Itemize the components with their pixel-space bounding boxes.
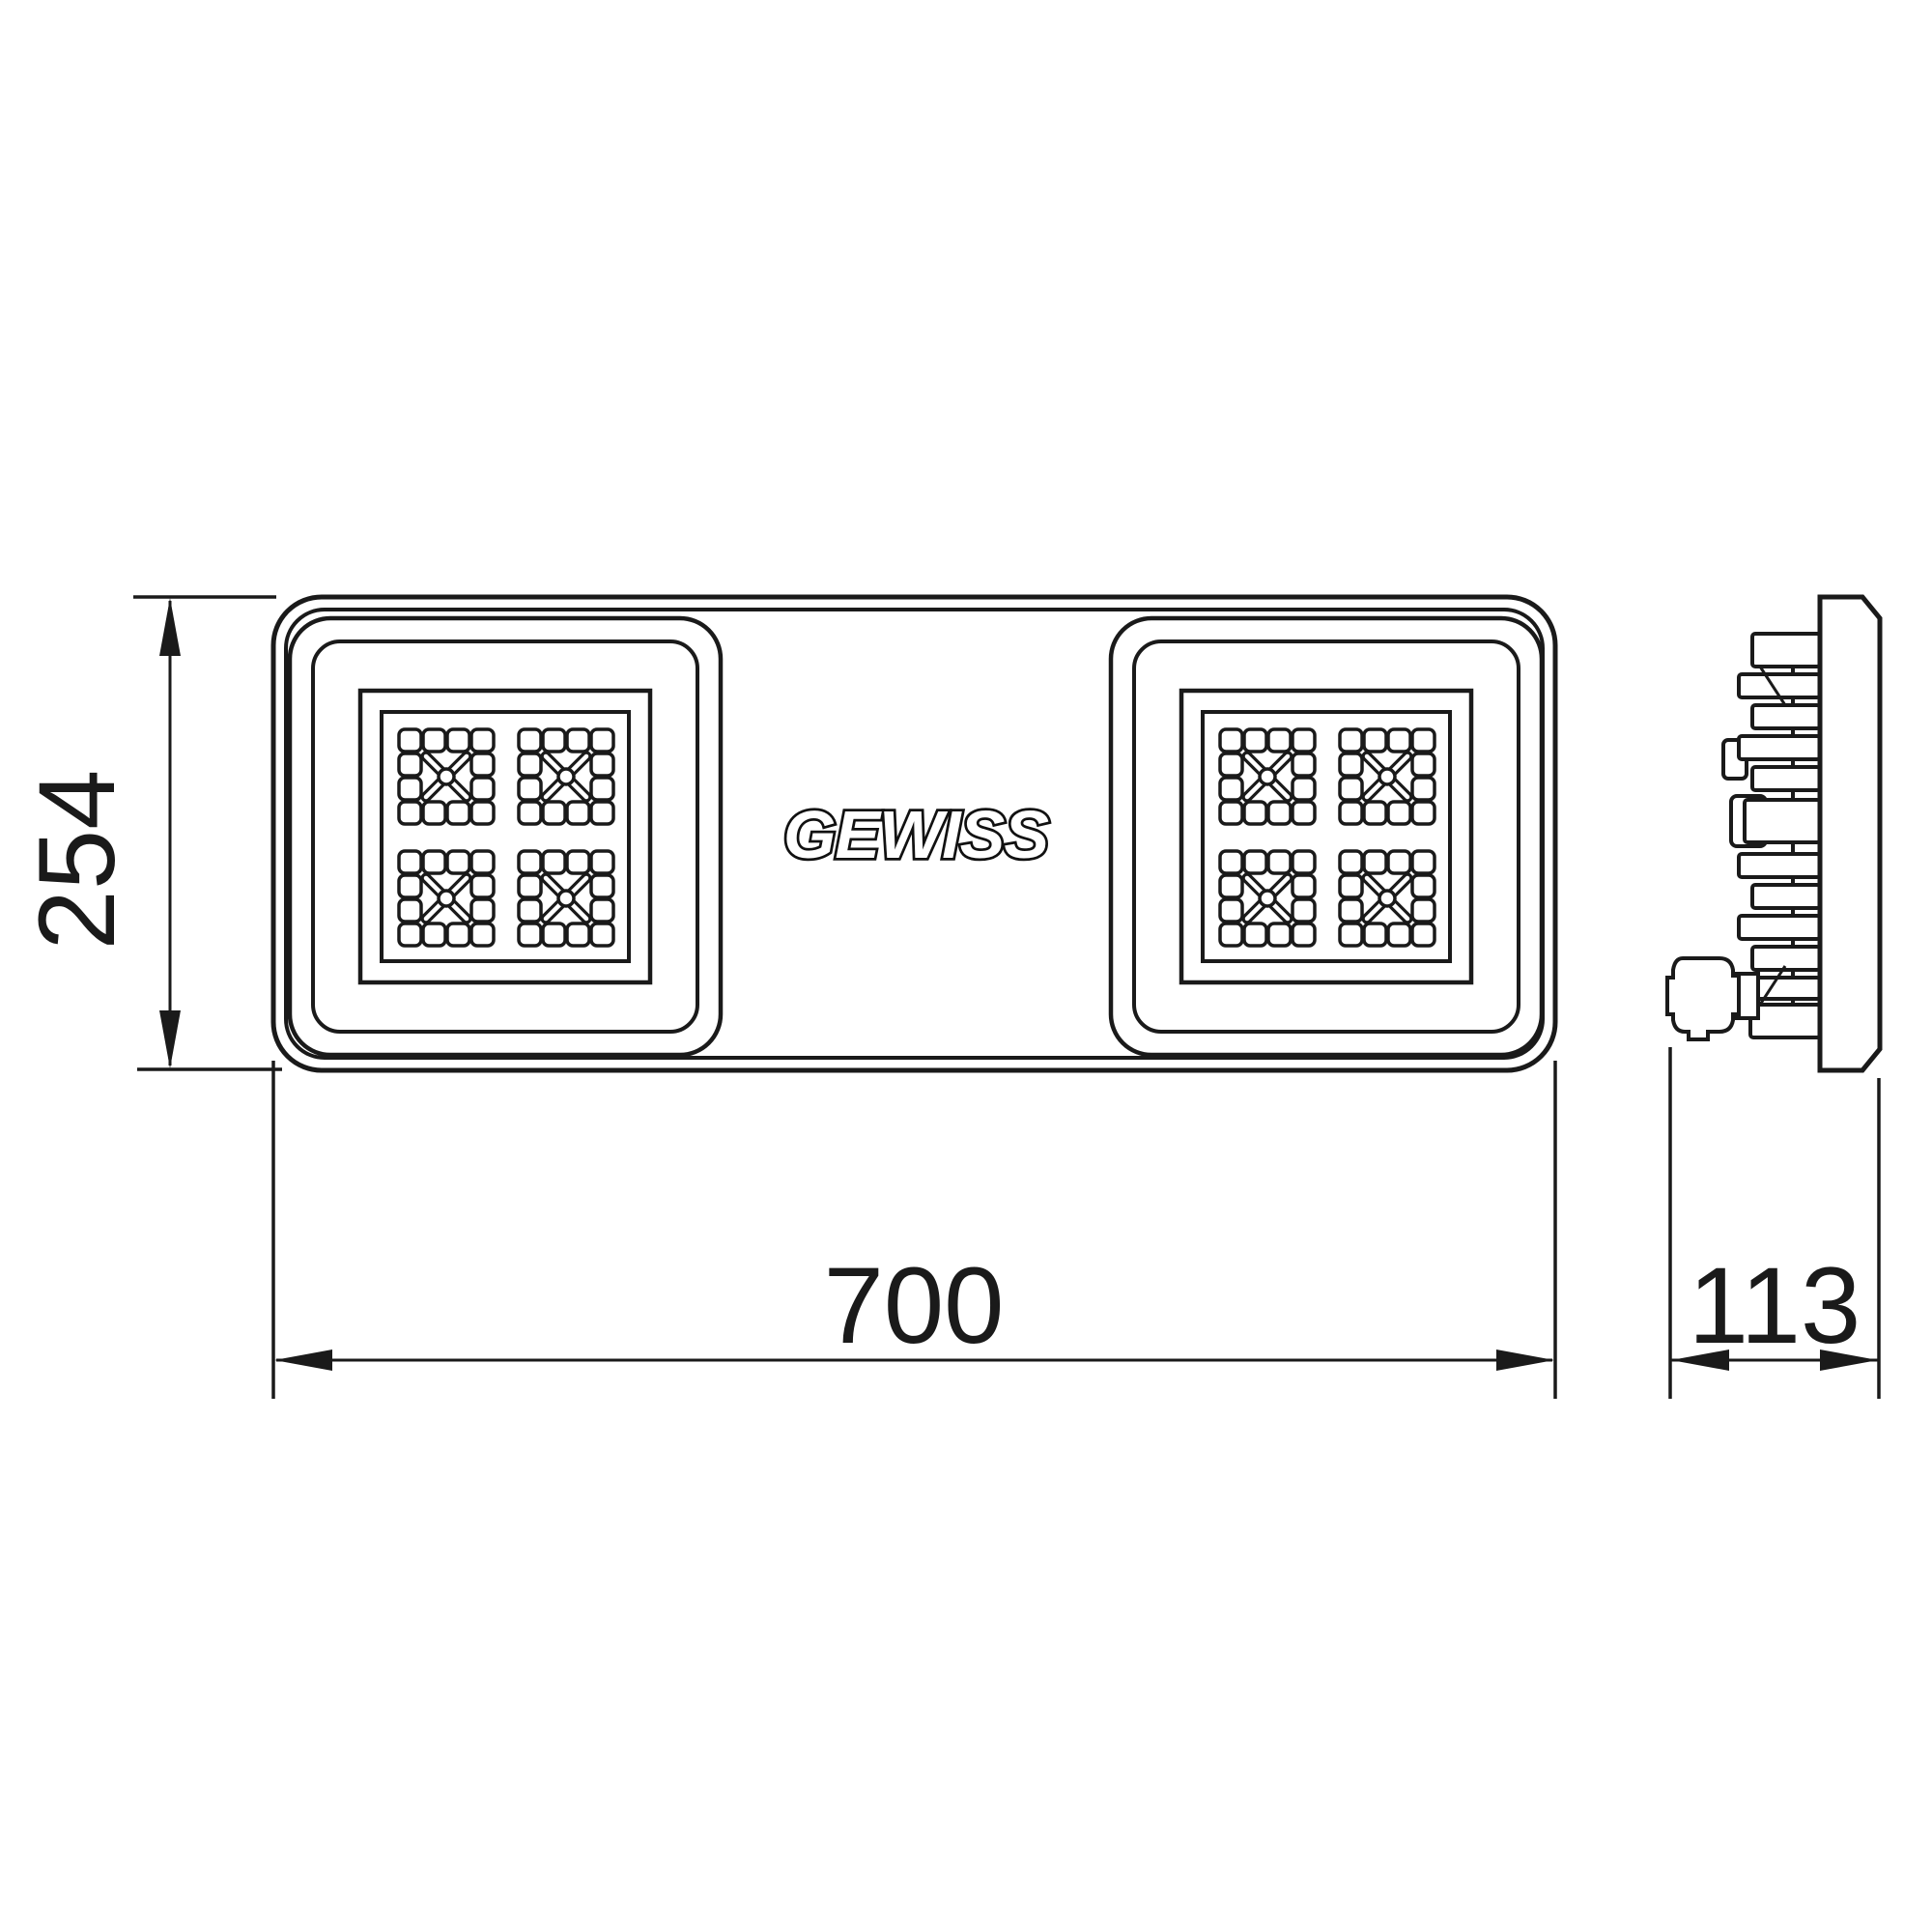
front-view: GEWISS xyxy=(273,597,1555,1070)
dimension-width: 700 xyxy=(273,1061,1555,1399)
side-view-front-face xyxy=(1820,597,1880,1070)
gewiss-logo: GEWISS xyxy=(783,797,1048,872)
side-view xyxy=(1667,597,1880,1070)
dimension-depth: 113 xyxy=(1670,1047,1879,1399)
led-module-right xyxy=(1111,618,1542,1055)
arrowhead-up-icon xyxy=(159,598,181,656)
technical-drawing-page: GEWISS xyxy=(0,0,1932,1932)
arrowhead-right-icon xyxy=(1496,1350,1554,1371)
dimension-height: 254 xyxy=(16,597,282,1069)
arrowhead-down-icon xyxy=(159,1010,181,1068)
cable-gland xyxy=(1667,958,1758,1039)
depth-dimension-label: 113 xyxy=(1689,1245,1861,1366)
width-dimension-label: 700 xyxy=(824,1245,1005,1366)
height-dimension-label: 254 xyxy=(16,770,137,951)
arrowhead-left-icon xyxy=(274,1350,332,1371)
led-module-left xyxy=(290,618,721,1055)
dimension-drawing: GEWISS xyxy=(0,0,1932,1932)
